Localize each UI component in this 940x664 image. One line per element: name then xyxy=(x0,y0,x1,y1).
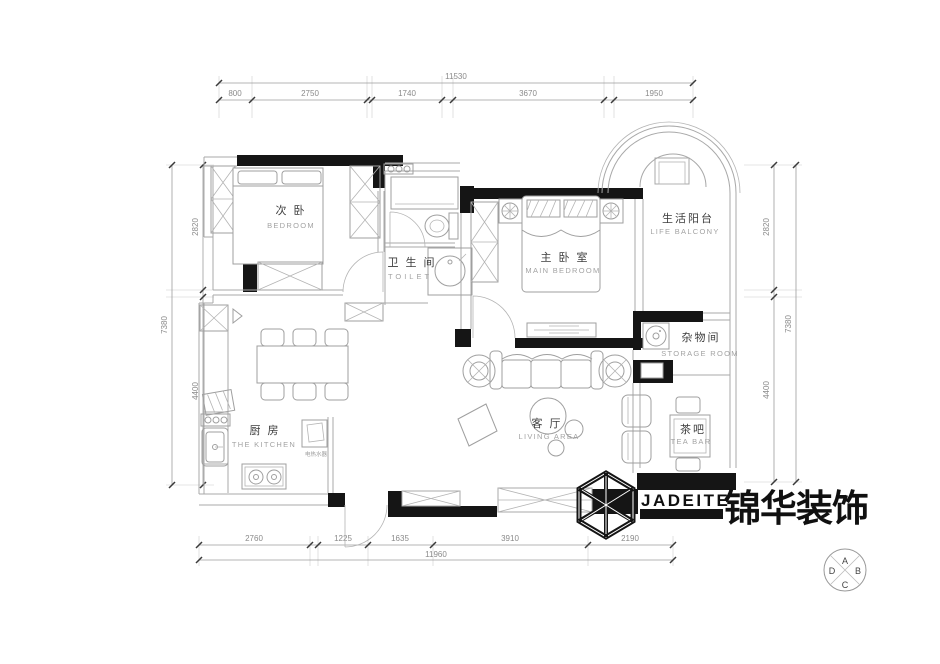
label-water-heater: 电热水器 xyxy=(305,450,328,458)
dim-bottom-total: 11960 xyxy=(425,550,447,559)
sofa-back xyxy=(502,355,592,360)
label-kitchen-en: THE KITCHEN xyxy=(232,440,296,449)
dim-bottom-seg-1: 1225 xyxy=(334,534,352,543)
label-living-zh: 客 厅 xyxy=(531,416,562,430)
dim-top-seg-2: 1740 xyxy=(398,89,416,98)
dim-top-total: 11530 xyxy=(445,72,467,81)
wc xyxy=(425,215,449,237)
dim-bottom-seg-0: 2760 xyxy=(245,534,263,543)
tea-table xyxy=(670,415,710,457)
dim-left-seg-0: 2820 xyxy=(191,218,200,236)
label-bedroom2-en: BEDROOM xyxy=(267,221,315,230)
label-storage-zh: 杂物间 xyxy=(682,330,721,344)
rug xyxy=(458,404,497,446)
dim-top-seg-3: 3670 xyxy=(519,89,537,98)
logo-text-en: JADEITE xyxy=(641,491,730,510)
label-bedroom2-zh: 次 卧 xyxy=(275,203,306,217)
compass-s: C xyxy=(842,580,849,590)
label-living-en: LIVING AREA xyxy=(519,432,580,441)
dim-bottom-seg-4: 2190 xyxy=(621,534,639,543)
wc-tank xyxy=(449,213,458,239)
label-main-bedroom-en: MAIN BEDROOM xyxy=(525,266,600,275)
dim-top-seg-4: 1950 xyxy=(645,89,663,98)
dim-right-total: 7380 xyxy=(784,315,793,333)
compass: A B C D xyxy=(824,549,866,591)
label-toilet-en: TOILET xyxy=(388,272,432,281)
compass-e: B xyxy=(855,566,861,576)
label-kitchen-zh: 厨 房 xyxy=(249,424,280,437)
compass-n: A xyxy=(842,556,848,566)
dim-bottom: 2760 1225 1635 3910 2190 11960 xyxy=(196,534,676,566)
label-balcony-en: LIFE BALCONY xyxy=(650,227,719,236)
kitchen-furniture xyxy=(200,303,383,493)
armchair-1 xyxy=(622,395,651,427)
label-toilet-zh: 卫 生 间 xyxy=(387,255,436,269)
compass-w: D xyxy=(829,566,836,576)
label-balcony-zh: 生活阳台 xyxy=(662,211,714,225)
label-storage-en: STORAGE ROOM xyxy=(661,349,739,358)
hood xyxy=(202,390,234,416)
dim-right-seg-1: 4400 xyxy=(762,381,771,399)
storage-fixtures xyxy=(643,323,669,349)
dim-bottom-seg-3: 3910 xyxy=(501,534,519,543)
logo-text-zh: 锦华装饰 xyxy=(724,488,868,529)
armchair-2 xyxy=(622,431,651,463)
dim-right-seg-0: 2820 xyxy=(762,218,771,236)
label-teabar-en: TEA BAR xyxy=(671,437,712,446)
washer xyxy=(643,323,669,349)
dim-right: 2820 4400 7380 xyxy=(744,162,802,485)
dining-table xyxy=(257,346,348,383)
floorplan-page: 11530 800 2750 1740 3670 1950 2760 1225 … xyxy=(0,0,940,664)
dim-bottom-seg-2: 1635 xyxy=(391,534,409,543)
label-main-bedroom-zh: 主 卧 室 xyxy=(540,250,589,264)
label-teabar-zh: 茶吧 xyxy=(680,423,706,436)
dim-top-seg-1: 2750 xyxy=(301,89,319,98)
logo-underline xyxy=(640,509,723,519)
dim-top: 11530 800 2750 1740 3670 1950 xyxy=(216,72,696,118)
dim-left-total: 7380 xyxy=(160,316,169,334)
dim-top-seg-0: 800 xyxy=(228,89,242,98)
floorplan-drawing: 11530 800 2750 1740 3670 1950 2760 1225 … xyxy=(0,0,940,664)
